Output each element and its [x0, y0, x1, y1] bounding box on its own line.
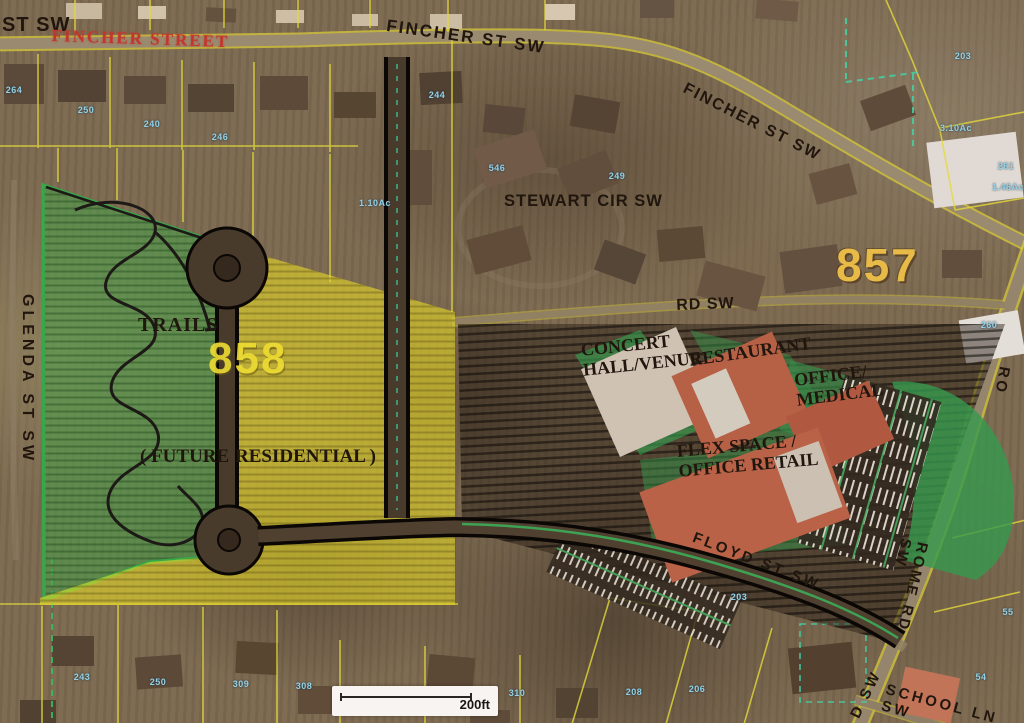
parcel-number: 1.10Ac — [359, 198, 391, 208]
street-label-rome-rd-sw-edge: RO — [991, 365, 1012, 396]
parcel-number: 3.10Ac — [940, 123, 972, 133]
street-label-glenda-st-sw: GLENDA ST SW — [18, 294, 36, 464]
parcel-number: 308 — [296, 681, 313, 691]
parcel-number: 546 — [489, 163, 506, 173]
parcel-number: 250 — [78, 105, 95, 115]
aerial-map[interactable]: ST SW FINCHER STREET FINCHER ST SW FINCH… — [0, 0, 1024, 723]
parcel-number: 54 — [975, 672, 986, 682]
scale-bar: 200ft — [332, 686, 498, 716]
parcel-number: 309 — [233, 679, 250, 689]
parcel-number: 246 — [212, 132, 229, 142]
parcel-number: 206 — [689, 684, 706, 694]
parcel-number: 260 — [981, 320, 998, 330]
future-residential-right: RESIDENTIAL ) — [235, 446, 376, 467]
parcel-number: 1.46Ac — [992, 182, 1024, 192]
parcel-number: 55 — [1002, 607, 1013, 617]
parcel-number: 250 — [150, 677, 167, 687]
street-label-stewart-cir-sw: STEWART CIR SW — [504, 192, 663, 210]
parcel-number: 249 — [609, 171, 626, 181]
parcel-number: 244 — [429, 90, 446, 100]
zone-label-future-residential: ( FUTURE RESIDENTIAL ) — [140, 446, 376, 467]
scale-bar-line — [340, 696, 472, 698]
parcel-number: 310 — [509, 688, 526, 698]
scale-bar-label: 200ft — [460, 697, 490, 712]
district-number-857: 857 — [836, 240, 919, 292]
district-number-858: 858 — [208, 334, 287, 383]
parcel-number: 261 — [998, 161, 1015, 171]
parcel-number: 264 — [6, 85, 23, 95]
parcel-number: 203 — [955, 51, 972, 61]
parcel-number: 203 — [731, 592, 748, 602]
parcel-number: 240 — [144, 119, 161, 129]
street-label-rd-sw: RD SW — [676, 295, 735, 315]
parcel-number: 208 — [626, 687, 643, 697]
zone-label-trails: TRAILS — [138, 314, 218, 336]
parcel-number: 243 — [74, 672, 91, 682]
future-residential-left: ( FUTURE — [140, 446, 229, 467]
